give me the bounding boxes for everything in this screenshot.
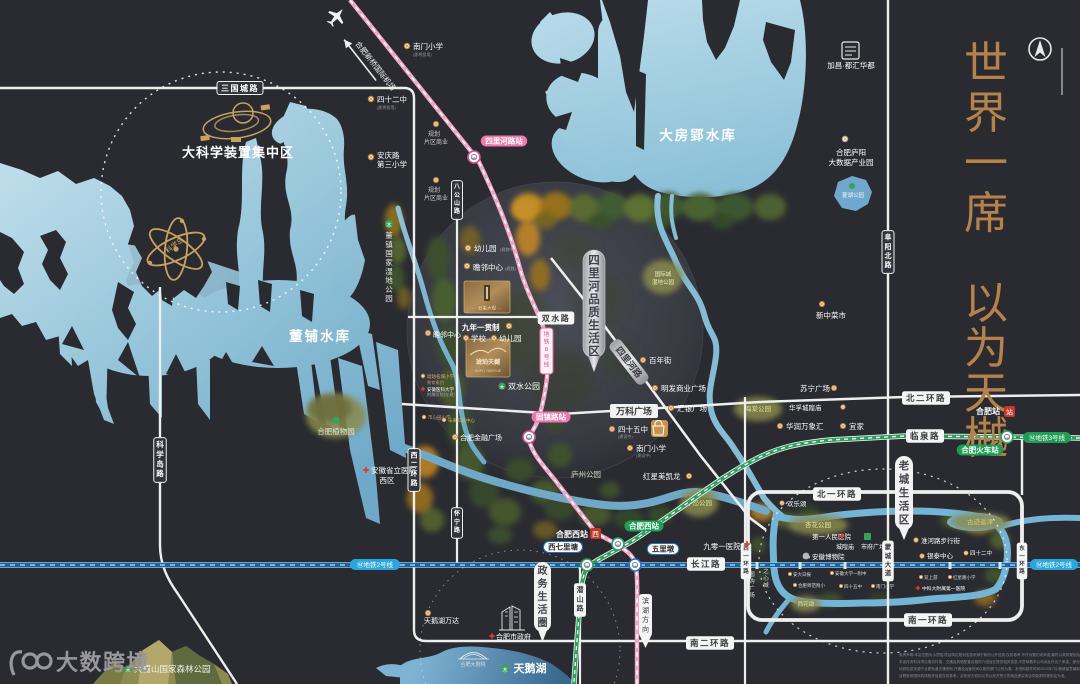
svg-text:Ⓜ地铁2号线: Ⓜ地铁2号线 bbox=[357, 560, 394, 569]
svg-text:大房郢水库: 大房郢水库 bbox=[659, 127, 737, 143]
svg-text:免责声明:本区位图为示意图,项目周边规划信息来源于政府公开信: 免责声明:本区位图为示意图,项目周边规划信息来源于政府公开信息,仅供参考,不作为… bbox=[899, 652, 1080, 657]
svg-text:华润万象汇: 华润万象汇 bbox=[786, 421, 824, 431]
svg-text:规划: 规划 bbox=[428, 130, 440, 138]
svg-text:片区商业: 片区商业 bbox=[424, 194, 448, 202]
svg-text:怀宁路: 怀宁路 bbox=[454, 510, 461, 534]
svg-text:国际城: 国际城 bbox=[655, 270, 672, 278]
svg-text:Ⓜ地铁3号线: Ⓜ地铁3号线 bbox=[1029, 433, 1066, 442]
svg-text:华孚城隍庙: 华孚城隍庙 bbox=[789, 403, 822, 412]
svg-text:万科广场: 万科广场 bbox=[615, 406, 652, 417]
svg-text:银泰中心: 银泰中心 bbox=[927, 551, 954, 560]
svg-text:界: 界 bbox=[964, 89, 1008, 138]
svg-text:市府广场: 市府广场 bbox=[861, 543, 885, 551]
svg-text:(即将投用): (即将投用) bbox=[377, 104, 396, 110]
svg-text:为: 为 bbox=[964, 324, 1008, 373]
svg-text:地铁信息来源于合肥轨道交通官网,开通及运营时间以政府部门公布: 地铁信息来源于合肥轨道交通官网,开通及运营时间以政府部门公布为准。本资料制作时间… bbox=[899, 666, 1080, 671]
svg-text:附属医院(在建): 附属医院(在建) bbox=[427, 391, 456, 398]
svg-text:瞻邻中心: 瞻邻中心 bbox=[433, 330, 461, 339]
svg-text:幼儿园: 幼儿园 bbox=[499, 333, 522, 343]
svg-text:合肥火车站: 合肥火车站 bbox=[961, 445, 999, 455]
svg-text:加昌·都汇华都: 加昌·都汇华都 bbox=[827, 60, 875, 70]
svg-text:站: 站 bbox=[1006, 408, 1013, 417]
svg-text:天鹅湖万达: 天鹅湖万达 bbox=[424, 616, 459, 625]
svg-text:合肥师范附小: 合肥师范附小 bbox=[798, 582, 825, 589]
svg-text:老城生活区: 老城生活区 bbox=[898, 459, 910, 526]
svg-text:合肥市政府: 合肥市政府 bbox=[496, 632, 531, 641]
svg-text:四十二中: 四十二中 bbox=[377, 94, 407, 104]
svg-text:木: 木 bbox=[386, 221, 392, 229]
svg-text:九零一医院: 九零一医院 bbox=[703, 541, 741, 551]
svg-text:合肥新桥国际机场相关信息仅供参考。买卖双方权利义务以双方签订: 合肥新桥国际机场相关信息仅供参考。买卖双方权利义务以双方签订的商品房买卖合同及附… bbox=[899, 673, 1068, 678]
svg-text:以: 以 bbox=[964, 279, 1008, 328]
svg-text:幼儿园: 幼儿园 bbox=[474, 243, 497, 253]
svg-text:四十五中: 四十五中 bbox=[618, 424, 648, 434]
svg-text:琥珀名城小学: 琥珀名城小学 bbox=[427, 373, 454, 380]
svg-text:(规划中): (规划中) bbox=[500, 246, 515, 252]
svg-text:合肥西站: 合肥西站 bbox=[629, 521, 659, 531]
svg-text:欢乐颂: 欢乐颂 bbox=[787, 499, 807, 508]
svg-text:淮河路步行街: 淮河路步行街 bbox=[921, 536, 961, 545]
svg-text:木: 木 bbox=[502, 666, 508, 674]
svg-text:古迹遥津: 古迹遥津 bbox=[967, 517, 994, 526]
svg-text:红星路小学: 红星路小学 bbox=[953, 574, 976, 581]
svg-text:西七里塘: 西七里塘 bbox=[548, 542, 578, 552]
svg-text:瞻邻中心: 瞻邻中心 bbox=[473, 262, 503, 272]
svg-text:合肥金融广场: 合肥金融广场 bbox=[460, 433, 502, 442]
svg-text:学校: 学校 bbox=[471, 333, 486, 343]
svg-text:长江路: 长江路 bbox=[691, 559, 721, 569]
svg-text:合肥西站: 合肥西站 bbox=[555, 529, 588, 539]
svg-text:大数跨境: 大数跨境 bbox=[56, 650, 150, 675]
svg-text:苏宁广场: 苏宁广场 bbox=[800, 383, 830, 393]
svg-text:汇银广场: 汇银广场 bbox=[677, 403, 707, 413]
svg-text:席: 席 bbox=[964, 189, 1008, 238]
svg-text:(建设中): (建设中) bbox=[636, 452, 651, 458]
svg-text:临泉路: 临泉路 bbox=[910, 431, 940, 441]
svg-text:大科学装置集中区: 大科学装置集中区 bbox=[182, 145, 294, 160]
svg-text:合肥站: 合肥站 bbox=[975, 406, 1000, 416]
svg-text:第三小学: 第三小学 bbox=[377, 159, 407, 169]
svg-text:三国城路: 三国城路 bbox=[221, 83, 259, 93]
svg-text:安徽大学一附中: 安徽大学一附中 bbox=[835, 570, 867, 577]
svg-text:之心城: 之心城 bbox=[763, 567, 769, 589]
svg-text:东一环路: 东一环路 bbox=[1019, 544, 1025, 575]
svg-text:片区商业: 片区商业 bbox=[424, 138, 448, 146]
svg-text:固镇路站: 固镇路站 bbox=[536, 412, 566, 422]
svg-text:西一环路: 西一环路 bbox=[743, 544, 749, 575]
svg-text:安徽省立医院: 安徽省立医院 bbox=[371, 465, 416, 475]
svg-text:南二环路: 南二环路 bbox=[690, 638, 730, 648]
svg-text:新中菜市: 新中菜市 bbox=[816, 310, 846, 320]
svg-text:南门小学: 南门小学 bbox=[636, 443, 666, 453]
svg-text:合肥大剧院: 合肥大剧院 bbox=[460, 661, 485, 668]
svg-text:双水路: 双水路 bbox=[542, 313, 571, 323]
svg-text:五里墩: 五里墩 bbox=[652, 544, 675, 554]
svg-text:九年一贯制: 九年一贯制 bbox=[461, 322, 500, 332]
svg-text:西: 西 bbox=[592, 531, 599, 539]
svg-text:世: 世 bbox=[964, 39, 1008, 88]
svg-text:宜家: 宜家 bbox=[849, 421, 864, 431]
svg-text:蒙城大道: 蒙城大道 bbox=[885, 542, 892, 577]
svg-text:科学岛路: 科学岛路 bbox=[156, 439, 164, 478]
svg-text:四里河路站: 四里河路站 bbox=[485, 136, 523, 146]
svg-text:本宣传资料对项目周边环境、交通及其他配套设施的介绍旨在提供相: 本宣传资料对项目周边环境、交通及其他配套设施的介绍旨在提供相关信息,不意味着本公… bbox=[899, 659, 1080, 664]
svg-text:安徽博物院: 安徽博物院 bbox=[812, 552, 845, 561]
svg-text:Ⓜ地铁2号线: Ⓜ地铁2号线 bbox=[1036, 560, 1073, 569]
svg-text:南门小学: 南门小学 bbox=[413, 41, 443, 51]
svg-text:城隍庙: 城隍庙 bbox=[836, 543, 854, 551]
svg-text:潜山路: 潜山路 bbox=[577, 585, 585, 612]
svg-text:南门小学: 南门小学 bbox=[876, 583, 894, 590]
svg-text:杏花公园: 杏花公园 bbox=[805, 520, 831, 529]
svg-text:政务生活圈: 政务生活圈 bbox=[538, 564, 549, 629]
svg-text:木: 木 bbox=[499, 384, 504, 391]
svg-text:教育集团: 教育集团 bbox=[427, 379, 444, 386]
svg-text:安庆路: 安庆路 bbox=[377, 150, 400, 160]
svg-text:(即将投用): (即将投用) bbox=[413, 51, 432, 57]
svg-text:双上游: 双上游 bbox=[924, 574, 938, 581]
svg-text:双水公园: 双水公园 bbox=[508, 381, 540, 391]
svg-text:四十五中: 四十五中 bbox=[844, 583, 862, 590]
svg-text:琥珀天樾: 琥珀天樾 bbox=[476, 358, 501, 366]
svg-text:四十二中: 四十二中 bbox=[970, 549, 992, 557]
svg-text:南一环路: 南一环路 bbox=[908, 615, 948, 625]
svg-text:未来科技中心: 未来科技中心 bbox=[448, 417, 475, 424]
svg-text:一: 一 bbox=[964, 139, 1008, 188]
svg-text:红星美凯龙: 红星美凯龙 bbox=[643, 471, 681, 481]
svg-text:规划: 规划 bbox=[428, 186, 440, 194]
svg-text:合肥植物园: 合肥植物园 bbox=[317, 426, 355, 436]
svg-text:天鹅湖: 天鹅湖 bbox=[514, 661, 547, 675]
svg-text:湿地公园: 湿地公园 bbox=[652, 278, 675, 286]
svg-text:明发商业广场: 明发商业广场 bbox=[661, 383, 706, 393]
svg-text:菱湖公园: 菱湖公园 bbox=[842, 191, 865, 199]
svg-text:西区: 西区 bbox=[380, 476, 395, 485]
svg-text:(规划): (规划) bbox=[505, 265, 516, 271]
svg-text:庐州公园: 庐州公园 bbox=[571, 469, 601, 479]
svg-text:海棠公园: 海棠公园 bbox=[745, 404, 771, 413]
svg-text:西花墩: 西花墩 bbox=[798, 600, 815, 608]
svg-text:董铺水库: 董铺水库 bbox=[289, 328, 351, 344]
svg-text:董镇国家湿地公园: 董镇国家湿地公园 bbox=[385, 230, 393, 303]
svg-text:中科大附属第一医院: 中科大附属第一医院 bbox=[922, 585, 965, 592]
svg-text:合肥庐阳: 合肥庐阳 bbox=[836, 147, 866, 157]
svg-text:百年街: 百年街 bbox=[649, 355, 672, 365]
svg-text:大数据产业园: 大数据产业园 bbox=[829, 157, 874, 167]
svg-text:第一人民医院: 第一人民医院 bbox=[812, 532, 852, 541]
svg-text:··· 云玺大观 ···: ··· 云玺大观 ··· bbox=[472, 305, 502, 312]
svg-text:北一环路: 北一环路 bbox=[817, 489, 857, 499]
svg-text:HUPO TIANYUE: HUPO TIANYUE bbox=[475, 369, 502, 373]
svg-text:北二环路: 北二环路 bbox=[906, 393, 946, 403]
svg-text:(建设中): (建设中) bbox=[618, 433, 633, 439]
svg-text:安大日报: 安大日报 bbox=[793, 571, 811, 578]
